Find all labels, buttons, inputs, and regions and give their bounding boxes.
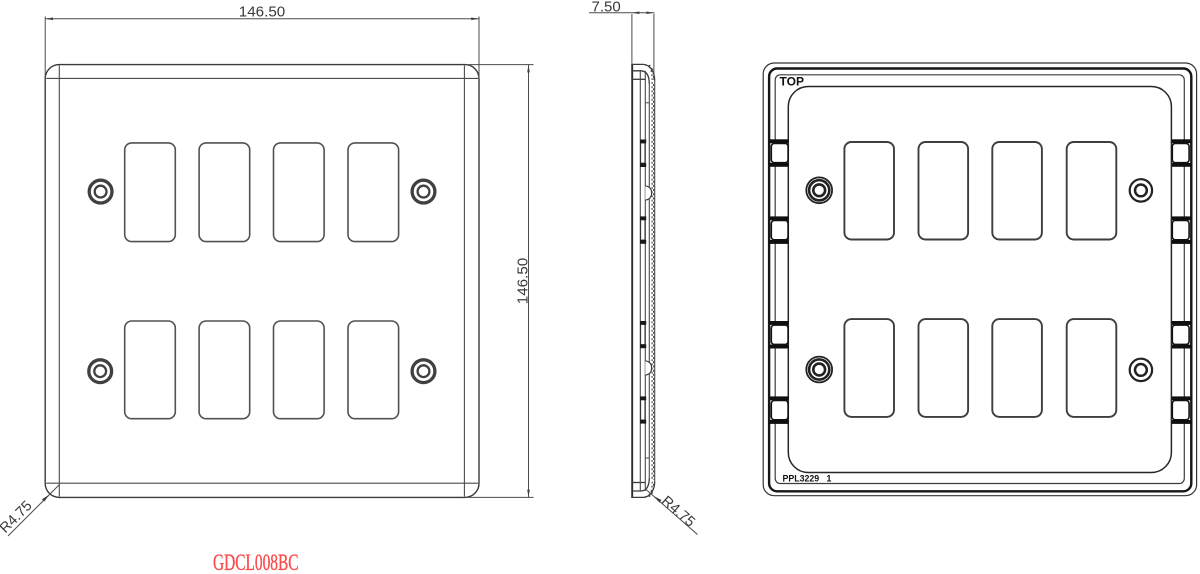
svg-text:TOP: TOP bbox=[780, 75, 804, 89]
svg-text:PPL3229 1: PPL3229 1 bbox=[783, 474, 832, 484]
svg-text:146.50: 146.50 bbox=[514, 258, 531, 304]
svg-text:146.50: 146.50 bbox=[239, 4, 285, 21]
svg-text:7.50: 7.50 bbox=[592, 0, 621, 15]
svg-text:GDCL008BC: GDCL008BC bbox=[213, 550, 299, 574]
